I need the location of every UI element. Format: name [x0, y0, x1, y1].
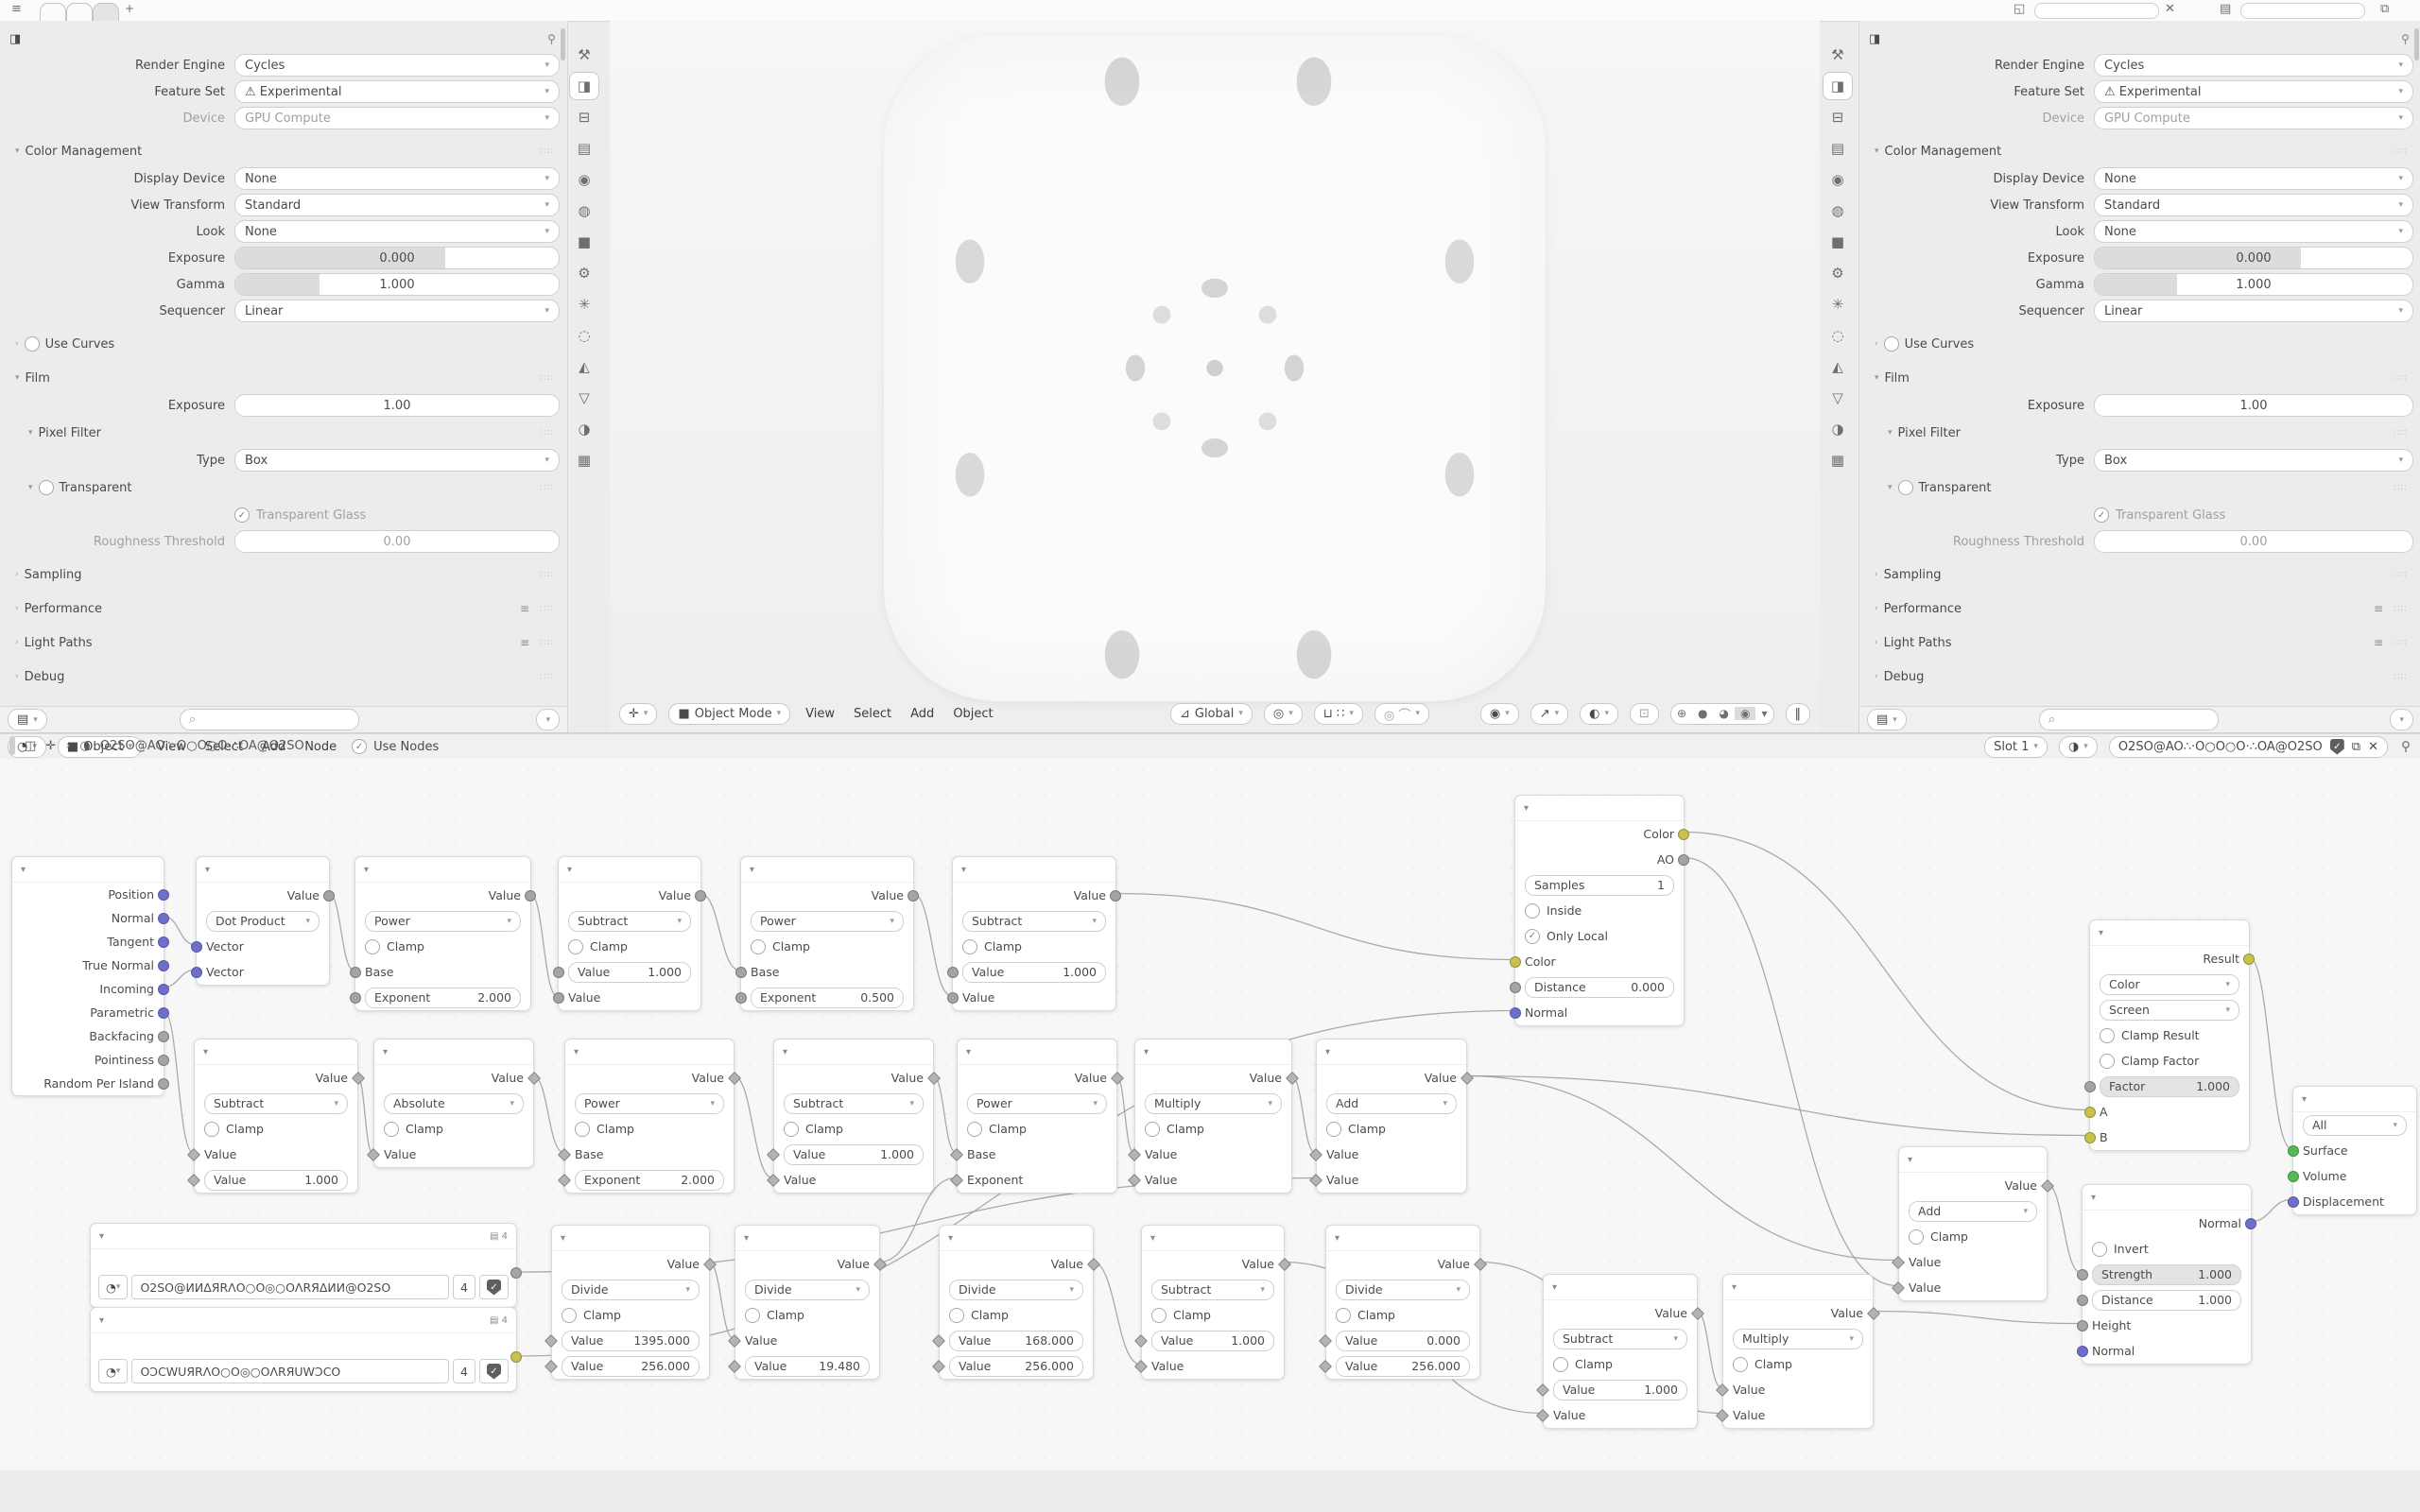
socket[interactable]: [158, 889, 169, 901]
rendered-object[interactable]: [884, 35, 1546, 701]
field-display-device[interactable]: None▾: [2094, 167, 2413, 190]
collapse-chevron-icon[interactable]: ▾: [364, 865, 369, 875]
socket[interactable]: [1128, 1147, 1141, 1160]
scrollbar[interactable]: [561, 28, 565, 60]
scene-selector[interactable]: [2034, 3, 2159, 19]
collapse-chevron-icon[interactable]: ▾: [2091, 1193, 2096, 1203]
socket[interactable]: [1474, 1257, 1487, 1270]
texture-name-field[interactable]: O2SO@ИИΔЯRΛO○O◎○OΛRЯΔИИ@O2SO: [131, 1275, 449, 1299]
checkbox-clamp[interactable]: Clamp: [751, 939, 810, 954]
socket[interactable]: [927, 1071, 941, 1084]
socket[interactable]: [873, 1257, 887, 1270]
section-pixel-filter[interactable]: ▾Pixel Filter∷∷: [0, 420, 567, 446]
socket[interactable]: [187, 1147, 200, 1160]
users-count-button[interactable]: 4: [453, 1275, 475, 1299]
socket[interactable]: [367, 1147, 380, 1160]
socket[interactable]: [947, 992, 959, 1004]
material-output-node[interactable]: ▾All▾SurfaceVolumeDisplacement: [2292, 1086, 2417, 1215]
node-header[interactable]: ▾: [953, 857, 1115, 883]
operation-dropdown[interactable]: Divide▾: [949, 1280, 1083, 1300]
socket[interactable]: [1286, 1071, 1299, 1084]
value-field[interactable]: Exponent2.000: [365, 988, 521, 1008]
node-header[interactable]: ▾: [1899, 1147, 2047, 1173]
texture-name-field[interactable]: OƆCWUЯRΛO○O◎○OΛRЯUWƆCO: [131, 1359, 449, 1383]
collapse-chevron-icon[interactable]: ▾: [1552, 1282, 1557, 1293]
section-transparent[interactable]: ▾Transparent∷∷: [0, 474, 567, 501]
collapse-button[interactable]: ▾: [536, 709, 560, 730]
node-header[interactable]: ▾: [374, 1039, 533, 1065]
view-layer-selector[interactable]: [2240, 3, 2365, 19]
socket[interactable]: [728, 1333, 741, 1347]
section-performance[interactable]: ›Performance≡∷∷: [0, 595, 567, 622]
socket[interactable]: [767, 1147, 780, 1160]
node-header[interactable]: ▾: [195, 1039, 357, 1065]
transform-orientation[interactable]: ⊿ Global▾: [1170, 703, 1253, 725]
checkbox-clamp[interactable]: Clamp: [1553, 1357, 1613, 1372]
section-sampling[interactable]: ›Sampling∷∷: [1859, 561, 2420, 588]
socket[interactable]: [350, 967, 361, 978]
section-checkbox[interactable]: [1898, 480, 1913, 495]
checkbox-clamp-result[interactable]: Clamp Result: [2100, 1028, 2200, 1043]
socket[interactable]: [735, 967, 747, 978]
math-dot-product[interactable]: ▾ValueDot Product▾VectorVector: [196, 856, 330, 986]
socket[interactable]: [1319, 1359, 1332, 1372]
texture-browse-button[interactable]: ◔▾: [98, 1275, 128, 1299]
tab-view-layer-icon[interactable]: ▤: [569, 134, 599, 163]
collapse-chevron-icon[interactable]: ▾: [1732, 1282, 1737, 1293]
toolbar-toggle[interactable]: [9, 736, 15, 755]
operation-dropdown[interactable]: Subtract▾: [1553, 1329, 1687, 1349]
node-header[interactable]: ▾: [1544, 1275, 1697, 1300]
socket[interactable]: [158, 984, 169, 995]
field-look[interactable]: None▾: [234, 220, 560, 243]
tab-world-icon[interactable]: ◍: [1823, 197, 1853, 225]
field-roughness-threshold[interactable]: 0.00: [234, 530, 560, 553]
tab-scene-icon[interactable]: ◉: [569, 165, 599, 194]
shading-material-icon[interactable]: ◕: [1714, 707, 1735, 720]
checkbox[interactable]: ✓: [2094, 507, 2109, 523]
operation-dropdown[interactable]: Power▾: [967, 1093, 1107, 1114]
checkbox-clamp[interactable]: Clamp: [1326, 1122, 1386, 1137]
tab-render-icon[interactable]: ◨: [569, 72, 599, 100]
checkbox[interactable]: [1884, 336, 1899, 352]
value-field[interactable]: Samples1: [1525, 875, 1674, 896]
socket[interactable]: [2077, 1346, 2088, 1357]
checkbox-clamp[interactable]: Clamp: [949, 1308, 1009, 1323]
overlays-dropdown[interactable]: ◐▾: [1580, 703, 1618, 725]
socket[interactable]: [544, 1333, 558, 1347]
checkbox-clamp[interactable]: Clamp: [784, 1122, 843, 1137]
socket[interactable]: [553, 992, 564, 1004]
socket[interactable]: [158, 1031, 169, 1042]
node-header[interactable]: ▾: [774, 1039, 933, 1065]
checkbox-clamp[interactable]: Clamp: [568, 939, 628, 954]
operation-dropdown[interactable]: Subtract▾: [568, 911, 691, 932]
operation-dropdown[interactable]: All▾: [2303, 1115, 2407, 1136]
socket[interactable]: [1678, 829, 1689, 840]
shader-node-editor[interactable]: ▾PositionNormalTangentTrue NormalIncomin…: [0, 732, 2420, 1470]
checkbox-clamp[interactable]: Clamp: [384, 1122, 443, 1137]
math-subtract[interactable]: ▾ValueSubtract▾ClampValue1.000Value: [1543, 1274, 1698, 1429]
socket[interactable]: [1087, 1257, 1100, 1270]
checkbox-clamp[interactable]: Clamp: [575, 1122, 634, 1137]
value-field[interactable]: Value256.000: [949, 1356, 1083, 1377]
checkbox-clamp-factor[interactable]: Clamp Factor: [2100, 1054, 2199, 1069]
use-curves-row[interactable]: ›Use Curves: [0, 331, 567, 357]
checkbox-row[interactable]: ✓Transparent Glass: [2094, 507, 2225, 523]
value-field[interactable]: Value1.000: [784, 1144, 924, 1165]
image-texture-node[interactable]: ▾▤ 4◔▾O2SO@ИИΔЯRΛO○O◎○OΛRЯΔИИ@O2SO4✓: [90, 1223, 517, 1308]
section-checkbox[interactable]: [39, 480, 54, 495]
texture-browse-button[interactable]: ◔▾: [98, 1359, 128, 1383]
socket[interactable]: [2077, 1269, 2088, 1280]
socket[interactable]: [907, 890, 919, 902]
socket[interactable]: [187, 1173, 200, 1186]
tab-view-layer-icon[interactable]: ▤: [1823, 134, 1853, 163]
value-field[interactable]: Value1395.000: [562, 1331, 700, 1351]
search-input[interactable]: ⌕: [2039, 709, 2219, 730]
node-header[interactable]: ▾: [552, 1226, 709, 1251]
tab-material-icon[interactable]: ◑: [1823, 415, 1853, 443]
menu-object[interactable]: Object: [949, 707, 996, 721]
collapse-chevron-icon[interactable]: ▾: [99, 1231, 104, 1242]
value-field[interactable]: Value1.000: [962, 962, 1106, 983]
value-field[interactable]: Distance0.000: [1525, 977, 1674, 998]
mode-selector[interactable]: ■ Object Mode▾: [668, 703, 790, 725]
section-light-paths[interactable]: ›Light Paths≡∷∷: [1859, 629, 2420, 656]
field-exposure[interactable]: 0.000: [234, 247, 560, 269]
field-exposure[interactable]: 0.000: [2094, 247, 2413, 269]
socket[interactable]: [350, 992, 361, 1004]
math-multiply[interactable]: ▾ValueMultiply▾ClampValueValue: [1722, 1274, 1874, 1429]
menu-view[interactable]: View: [802, 707, 838, 721]
tab-constraints-icon[interactable]: ◭: [569, 352, 599, 381]
socket[interactable]: [1691, 1306, 1704, 1319]
socket[interactable]: [2077, 1320, 2088, 1332]
bump-node[interactable]: ▾NormalInvertStrength1.000Distance1.000H…: [2082, 1184, 2252, 1365]
list-icon[interactable]: ≡: [520, 602, 529, 615]
operation-dropdown[interactable]: Subtract▾: [1151, 1280, 1274, 1300]
viewport-3d[interactable]: ✛▾ ■ Object Mode▾ View Select Add Object…: [610, 21, 1820, 732]
value-field[interactable]: Value1.000: [204, 1170, 348, 1191]
socket[interactable]: [1716, 1383, 1729, 1396]
tab-modifiers-icon[interactable]: ⚙: [1823, 259, 1853, 287]
socket[interactable]: [352, 1071, 365, 1084]
node-header[interactable]: ▾: [559, 857, 700, 883]
math-divide[interactable]: ▾ValueDivide▾ClampValueValue19.480: [735, 1225, 880, 1380]
node-header[interactable]: ▾: [1142, 1226, 1284, 1251]
pivot-point-button[interactable]: ◎▾: [1264, 703, 1303, 725]
socket[interactable]: [1510, 982, 1521, 993]
node-header[interactable]: ▾: [940, 1226, 1093, 1251]
socket[interactable]: [1110, 890, 1121, 902]
socket[interactable]: [703, 1257, 717, 1270]
mix-color-node[interactable]: ▾ResultColor▾Screen▾Clamp ResultClamp Fa…: [2089, 919, 2250, 1151]
editor-type-button[interactable]: ▤▾: [1867, 709, 1907, 730]
socket[interactable]: [158, 1007, 169, 1019]
shading-solid-icon[interactable]: ●: [1692, 707, 1713, 720]
collapse-chevron-icon[interactable]: ▾: [567, 865, 572, 875]
socket[interactable]: [947, 967, 959, 978]
math-subtract[interactable]: ▾ValueSubtract▾ClampValue1.000Value: [558, 856, 701, 1011]
tab-constraints-icon[interactable]: ◭: [1823, 352, 1853, 381]
socket[interactable]: [1134, 1359, 1148, 1372]
tab-output-icon[interactable]: ⊟: [569, 103, 599, 131]
field-render-engine[interactable]: Cycles▾: [234, 54, 560, 77]
math-subtract[interactable]: ▾ValueSubtract▾ClampValue1.000Value: [952, 856, 1116, 1011]
editor-type-button[interactable]: ▤▾: [8, 709, 47, 730]
checkbox-clamp[interactable]: Clamp: [562, 1308, 621, 1323]
operation-dropdown[interactable]: Add▾: [1326, 1093, 1457, 1114]
collapse-chevron-icon[interactable]: ▾: [1325, 1047, 1330, 1057]
node-header[interactable]: ▾: [1326, 1226, 1479, 1251]
math-subtract[interactable]: ▾ValueSubtract▾ClampValue1.000Value: [773, 1039, 934, 1194]
operation-dropdown[interactable]: Multiply▾: [1733, 1329, 1863, 1349]
proportional-edit-button[interactable]: ◎ ⌒▾: [1374, 703, 1429, 725]
socket[interactable]: [323, 890, 335, 902]
value-field[interactable]: Value256.000: [562, 1356, 700, 1377]
collapse-chevron-icon[interactable]: ▾: [574, 1047, 579, 1057]
tab-render-icon[interactable]: ◨: [1823, 72, 1853, 100]
socket[interactable]: [510, 1267, 522, 1279]
operation-dropdown[interactable]: Multiply▾: [1145, 1093, 1282, 1114]
shading-dropdown[interactable]: ▾: [1755, 707, 1772, 720]
socket[interactable]: [728, 1071, 741, 1084]
field-roughness-threshold[interactable]: 0.00: [2094, 530, 2413, 553]
tab-world-icon[interactable]: ◍: [569, 197, 599, 225]
gizmo-dropdown[interactable]: ↗▾: [1530, 703, 1568, 725]
menu-add[interactable]: Add: [907, 707, 938, 721]
shading-rendered-icon[interactable]: ◉: [1735, 707, 1755, 720]
value-field[interactable]: Value168.000: [949, 1331, 1083, 1351]
section-sampling[interactable]: ›Sampling∷∷: [0, 561, 567, 588]
socket[interactable]: [510, 1351, 522, 1363]
socket[interactable]: [1867, 1306, 1880, 1319]
node-header[interactable]: ▾: [355, 857, 530, 883]
tab-physics-icon[interactable]: ◌: [569, 321, 599, 350]
socket[interactable]: [158, 936, 169, 948]
checkbox-inside[interactable]: Inside: [1525, 903, 1582, 919]
checkbox-clamp[interactable]: Clamp: [967, 1122, 1027, 1137]
node-header[interactable]: ▾: [2293, 1087, 2416, 1112]
socket[interactable]: [767, 1173, 780, 1186]
socket[interactable]: [728, 1359, 741, 1372]
socket[interactable]: [1716, 1408, 1729, 1421]
field-feature-set[interactable]: ⚠ Experimental▾: [2094, 80, 2413, 103]
socket[interactable]: [2084, 1081, 2096, 1092]
math-absolute[interactable]: ▾ValueAbsolute▾ClampValue: [373, 1039, 534, 1168]
field-sequencer[interactable]: Linear▾: [2094, 300, 2413, 322]
checkbox-invert[interactable]: Invert: [2092, 1242, 2149, 1257]
checkbox-clamp[interactable]: Clamp: [1733, 1357, 1792, 1372]
node-header[interactable]: ▾: [735, 1226, 879, 1251]
socket[interactable]: [158, 1078, 169, 1090]
socket[interactable]: [1892, 1255, 1905, 1268]
socket[interactable]: [2245, 1218, 2256, 1229]
search-input[interactable]: ⌕: [180, 709, 359, 730]
socket[interactable]: [158, 913, 169, 924]
checkbox-row[interactable]: ✓Transparent Glass: [234, 507, 366, 523]
node-header[interactable]: ▾▤ 4: [91, 1224, 516, 1249]
socket[interactable]: [1510, 1007, 1521, 1019]
list-icon[interactable]: ≡: [2374, 636, 2383, 649]
tab-scene-icon[interactable]: ◉: [1823, 165, 1853, 194]
socket[interactable]: [1319, 1333, 1332, 1347]
fake-user-button[interactable]: ✓: [479, 1359, 509, 1383]
tab-modifiers-icon[interactable]: ⚙: [569, 259, 599, 287]
operation-dropdown[interactable]: Power▾: [575, 1093, 724, 1114]
value-field[interactable]: Value0.000: [1336, 1331, 1470, 1351]
node-header[interactable]: ▾: [12, 857, 164, 883]
collapse-chevron-icon[interactable]: ▾: [1524, 803, 1529, 814]
pause-render-button[interactable]: ‖: [1786, 703, 1811, 725]
snap-button[interactable]: ⊔ ∷▾: [1314, 703, 1363, 725]
value-field[interactable]: Exponent2.000: [575, 1170, 724, 1191]
ambient-occlusion-node[interactable]: ▾ColorAOSamples1Inside✓Only LocalColorDi…: [1514, 795, 1685, 1026]
socket[interactable]: [695, 890, 706, 902]
value-field[interactable]: Distance1.000: [2092, 1290, 2241, 1311]
operation-dropdown[interactable]: Divide▾: [562, 1280, 700, 1300]
collapse-chevron-icon[interactable]: ▾: [1144, 1047, 1149, 1057]
socket[interactable]: [191, 967, 202, 978]
value-field[interactable]: Exponent0.500: [751, 988, 904, 1008]
math-subtract[interactable]: ▾ValueSubtract▾ClampValue1.000Value: [1141, 1225, 1285, 1380]
tab-object-icon[interactable]: ■: [1823, 228, 1853, 256]
collapse-chevron-icon[interactable]: ▾: [99, 1315, 104, 1326]
users-count-button[interactable]: 4: [453, 1359, 475, 1383]
node-header[interactable]: ▾: [741, 857, 913, 883]
operation-dropdown[interactable]: Subtract▾: [962, 911, 1106, 932]
checkbox[interactable]: [25, 336, 40, 352]
image-texture-node[interactable]: ▾▤ 4◔▾OƆCWUЯRΛO○O◎○OΛRЯUWƆCO4✓: [90, 1307, 517, 1392]
tab-object-icon[interactable]: ■: [569, 228, 599, 256]
collapse-chevron-icon[interactable]: ▾: [948, 1233, 953, 1244]
collapse-chevron-icon[interactable]: ▾: [2099, 928, 2103, 938]
socket[interactable]: [1278, 1257, 1291, 1270]
view-layer-add-icon[interactable]: ⧉: [2380, 2, 2389, 16]
math-divide[interactable]: ▾ValueDivide▾ClampValue168.000Value256.0…: [939, 1225, 1094, 1380]
socket[interactable]: [544, 1359, 558, 1372]
socket[interactable]: [932, 1333, 945, 1347]
xray-toggle[interactable]: ⊡: [1630, 703, 1659, 725]
tab-particles-icon[interactable]: ✳: [1823, 290, 1853, 318]
tab-texture-icon[interactable]: ▦: [1823, 446, 1853, 474]
collapse-chevron-icon[interactable]: ▾: [1335, 1233, 1340, 1244]
collapse-chevron-icon[interactable]: ▾: [961, 865, 966, 875]
field-sequencer[interactable]: Linear▾: [234, 300, 560, 322]
math-add[interactable]: ▾ValueAdd▾ClampValueValue: [1898, 1146, 2048, 1301]
checkbox[interactable]: ✓: [234, 507, 250, 523]
field-gamma[interactable]: 1.000: [234, 273, 560, 296]
socket[interactable]: [1128, 1173, 1141, 1186]
value-field[interactable]: Value256.000: [1336, 1356, 1470, 1377]
socket[interactable]: [1309, 1147, 1322, 1160]
pin-icon[interactable]: [2399, 33, 2411, 45]
value-field[interactable]: Factor1.000: [2100, 1076, 2239, 1097]
field-device[interactable]: GPU Compute▾: [2094, 107, 2413, 129]
section-light-paths[interactable]: ›Light Paths≡∷∷: [0, 629, 567, 656]
section-transparent[interactable]: ▾Transparent∷∷: [1859, 474, 2420, 501]
socket[interactable]: [558, 1147, 571, 1160]
operation-dropdown[interactable]: Subtract▾: [784, 1093, 924, 1114]
field-type[interactable]: Box▾: [2094, 449, 2413, 472]
socket[interactable]: [2077, 1295, 2088, 1306]
value-field[interactable]: Value1.000: [1553, 1380, 1687, 1400]
field-gamma[interactable]: 1.000: [2094, 273, 2413, 296]
checkbox-clamp[interactable]: Clamp: [365, 939, 424, 954]
socket[interactable]: [1510, 956, 1521, 968]
fake-user-button[interactable]: ✓: [479, 1275, 509, 1299]
node-header[interactable]: ▾: [1515, 796, 1684, 821]
menu-select[interactable]: Select: [850, 707, 895, 721]
math-power[interactable]: ▾ValuePower▾ClampBaseExponent2.000: [354, 856, 531, 1011]
socket[interactable]: [2288, 1196, 2299, 1208]
field-view-transform[interactable]: Standard▾: [2094, 194, 2413, 216]
node-header[interactable]: ▾: [565, 1039, 734, 1065]
socket[interactable]: [558, 1173, 571, 1186]
field-display-device[interactable]: None▾: [234, 167, 560, 190]
checkbox-clamp[interactable]: Clamp: [1909, 1229, 1968, 1245]
shading-wireframe-icon[interactable]: ⊕: [1671, 707, 1692, 720]
socket[interactable]: [2084, 1132, 2096, 1143]
field-type[interactable]: Box▾: [234, 449, 560, 472]
node-header[interactable]: ▾: [2083, 1185, 2251, 1211]
socket[interactable]: [1536, 1408, 1549, 1421]
operation-dropdown[interactable]: Color▾: [2100, 974, 2239, 995]
node-header[interactable]: ▾: [958, 1039, 1116, 1065]
field-device[interactable]: GPU Compute▾: [234, 107, 560, 129]
collapse-chevron-icon[interactable]: ▾: [205, 865, 210, 875]
socket[interactable]: [1461, 1071, 1474, 1084]
socket[interactable]: [1536, 1383, 1549, 1396]
tab-tool-icon[interactable]: ⚒: [1823, 41, 1853, 69]
math-multiply[interactable]: ▾ValueMultiply▾ClampValueValue: [1134, 1039, 1292, 1194]
socket[interactable]: [553, 967, 564, 978]
value-field[interactable]: Value1.000: [568, 962, 691, 983]
socket[interactable]: [2288, 1171, 2299, 1182]
operation-dropdown[interactable]: Subtract▾: [204, 1093, 348, 1114]
tab-object-data-icon[interactable]: ▽: [1823, 384, 1853, 412]
checkbox-only-local[interactable]: ✓Only Local: [1525, 929, 1608, 944]
tab-material-icon[interactable]: ◑: [569, 415, 599, 443]
operation-dropdown[interactable]: Dot Product▾: [206, 911, 320, 932]
section-debug[interactable]: ›Debug∷∷: [1859, 663, 2420, 690]
socket[interactable]: [525, 890, 536, 902]
field-look[interactable]: None▾: [2094, 220, 2413, 243]
operation-dropdown[interactable]: Screen▾: [2100, 1000, 2239, 1021]
add-workspace-icon[interactable]: +: [125, 2, 134, 15]
checkbox-clamp[interactable]: Clamp: [1145, 1122, 1204, 1137]
node-header[interactable]: ▾: [1317, 1039, 1466, 1065]
section-performance[interactable]: ›Performance≡∷∷: [1859, 595, 2420, 622]
collapse-button[interactable]: ▾: [2390, 709, 2413, 730]
operation-dropdown[interactable]: Divide▾: [745, 1280, 870, 1300]
operation-dropdown[interactable]: Divide▾: [1336, 1280, 1470, 1300]
socket[interactable]: [1678, 854, 1689, 866]
value-field[interactable]: Strength1.000: [2092, 1264, 2241, 1285]
collapse-chevron-icon[interactable]: ▾: [383, 1047, 388, 1057]
socket[interactable]: [735, 992, 747, 1004]
checkbox-clamp[interactable]: Clamp: [962, 939, 1022, 954]
section-color-management[interactable]: ▾Color Management∷∷: [0, 138, 567, 164]
socket[interactable]: [191, 941, 202, 953]
socket[interactable]: [1134, 1333, 1148, 1347]
section-color-management[interactable]: ▾Color Management∷∷: [1859, 138, 2420, 164]
node-header[interactable]: ▾: [1723, 1275, 1873, 1300]
math-power[interactable]: ▾ValuePower▾ClampBaseExponent0.500: [740, 856, 914, 1011]
socket[interactable]: [932, 1359, 945, 1372]
socket[interactable]: [2041, 1178, 2054, 1192]
